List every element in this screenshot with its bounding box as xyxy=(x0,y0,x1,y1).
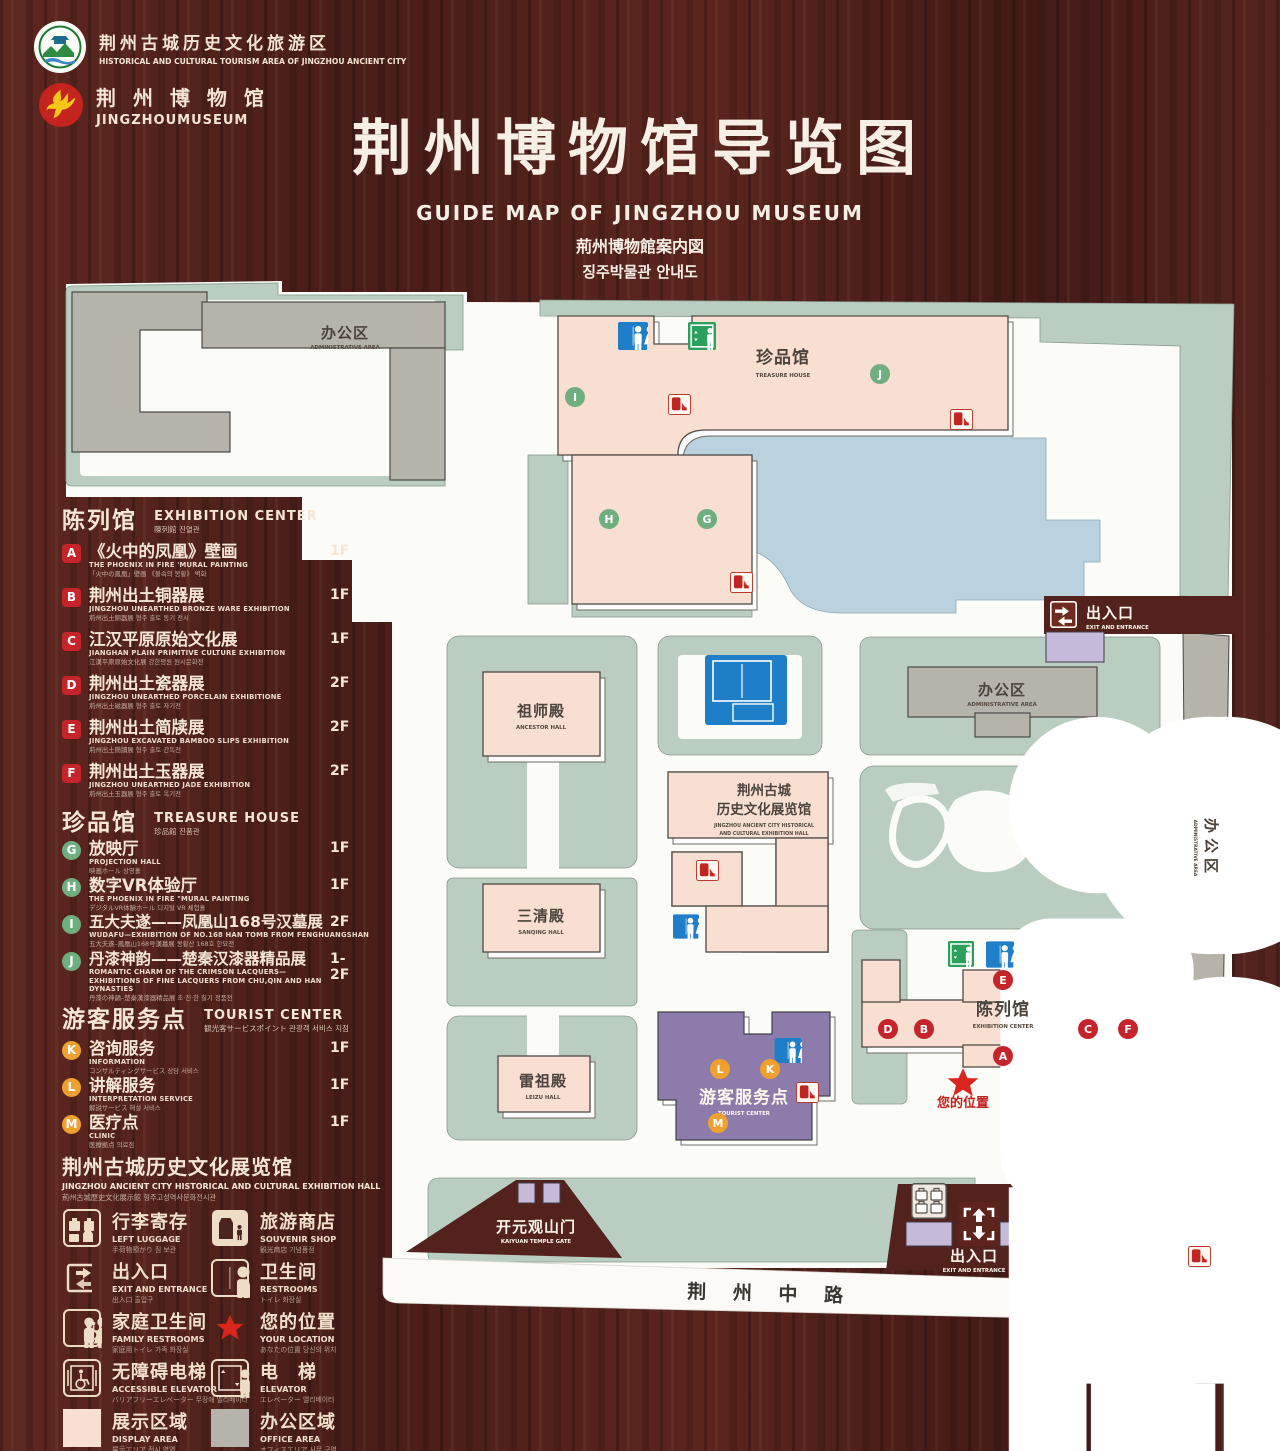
svg-text:H: H xyxy=(604,513,613,526)
section-title: 游客服务点 xyxy=(62,1000,187,1034)
floor-label: 1F xyxy=(330,840,349,856)
elevator-icon xyxy=(210,1358,250,1398)
svg-text:EXIT AND ENTRANCE: EXIT AND ENTRANCE xyxy=(943,1268,1006,1274)
marker-badge-K: K xyxy=(62,1041,81,1060)
legend-restrooms: 卫生间 RESTROOMSトイレ 화장실 xyxy=(210,1258,318,1304)
list-item-H: H 数字VR体验厅 THE PHOENIX IN FIRE "MURAL PAI… xyxy=(62,877,362,912)
floor-label: 1-2F xyxy=(330,951,362,983)
svg-text:TREASURE HOUSE: TREASURE HOUSE xyxy=(756,373,811,379)
guide-map-poster: 荆 州 中 路 xyxy=(0,0,1280,1451)
kaiyuan-gate-label: 开元观山门 xyxy=(496,1218,576,1236)
marker-badge-M: M xyxy=(62,1115,81,1134)
svg-text:ANCESTOR HALL: ANCESTOR HALL xyxy=(516,725,567,731)
page-title-ja: 荊州博物館案内図 xyxy=(0,233,1280,257)
list-item-C: C 江汉平原原始文化展 JIANGHAN PLAIN PRIMITIVE CUL… xyxy=(62,631,362,666)
family-restrooms-icon xyxy=(62,1308,102,1348)
svg-text:G: G xyxy=(702,513,711,526)
accessible-elevator-icon xyxy=(62,1358,102,1398)
floor-label: 2F xyxy=(330,763,349,779)
svg-text:历史文化展览馆: 历史文化展览馆 xyxy=(717,801,812,818)
svg-text:B: B xyxy=(920,1023,928,1036)
marker-B: B xyxy=(914,1019,934,1039)
list-item-A: A 《火中的凤凰》壁画 THE PHOENIX IN FIRE 'MURAL P… xyxy=(62,543,362,578)
legend-display-area: 展示区域 DISPLAY AREA展示エリア 전시 영역 xyxy=(62,1408,188,1451)
svg-text:K: K xyxy=(766,1063,775,1076)
svg-text:F: F xyxy=(1124,1023,1132,1036)
exit-s-label: 出入口 xyxy=(950,1247,998,1265)
jz-hall-note: 荆州古城历史文化展览馆 JINGZHOU ANCIENT CITY HISTOR… xyxy=(62,1151,380,1203)
legend-family-restrooms: 家庭卫生间 FAMILY RESTROOMS家庭用トイレ 가족 화장실 xyxy=(62,1308,207,1354)
marker-I: I xyxy=(565,387,585,407)
list-item-G: G 放映厅 PROJECTION HALL 映画ホール 상영홀 1F xyxy=(62,840,362,875)
your-location-label: 您的位置 xyxy=(937,1095,989,1111)
fire-extinguisher-icon xyxy=(797,1082,819,1102)
svg-text:JINGZHOU ANCIENT CITY HISTORIC: JINGZHOU ANCIENT CITY HISTORICAL xyxy=(713,823,814,829)
exit-ne-label: 出入口 xyxy=(1086,604,1134,622)
left-luggage-icon xyxy=(62,1208,102,1248)
svg-text:M: M xyxy=(713,1117,724,1130)
legend-elevator: 电 梯 ELEVATORエレベーター 엘리베이터 xyxy=(210,1358,334,1404)
section-title: 陈列馆 xyxy=(62,501,137,535)
page-title-ko: 징주박물관 안내도 xyxy=(0,261,1280,282)
legend-your-location: 您的位置 YOUR LOCATIONあなたの位置 당신의 위치 xyxy=(210,1308,336,1354)
marker-badge-D: D xyxy=(62,676,81,695)
restrooms-icon xyxy=(210,1258,250,1298)
marker-L: L xyxy=(710,1059,730,1079)
legend-souvenir-shop: 旅游商店 SOUVENIR SHOP観光商店 기념품점 xyxy=(210,1208,336,1254)
svg-text:KAIYUAN TEMPLE GATE: KAIYUAN TEMPLE GATE xyxy=(501,1239,572,1245)
svg-text:D: D xyxy=(883,1023,892,1036)
legend-left-luggage: 行李寄存 LEFT LUGGAGE手荷物預かり 짐 보관 xyxy=(62,1208,188,1254)
road-label: 荆 州 中 路 xyxy=(687,1280,853,1307)
svg-text:办公区: 办公区 xyxy=(1202,818,1220,878)
marker-badge-A: A xyxy=(62,544,81,563)
svg-text:C: C xyxy=(1084,1023,1092,1036)
fire-extinguisher-icon xyxy=(951,409,973,429)
svg-text:LEIZU HALL: LEIZU HALL xyxy=(526,1095,561,1101)
display-area-swatch xyxy=(63,1409,101,1447)
floor-label: 1F xyxy=(330,1077,349,1093)
poster-title-block: 荆州博物馆导览图 GUIDE MAP OF JINGZHOU MUSEUM 荊州… xyxy=(0,100,1280,282)
floor-label: 1F xyxy=(330,1114,349,1130)
fire-extinguisher-icon xyxy=(669,394,691,414)
list-item-I: I 五大夫遂——凤凰山168号汉墓展 WUDAFU—EXHIBITION OF … xyxy=(62,914,362,948)
marker-F: F xyxy=(1118,1019,1138,1039)
marker-D: D xyxy=(878,1019,898,1039)
svg-text:SANQING HALL: SANQING HALL xyxy=(518,930,564,936)
ancestor-hall-label: 祖师殿 xyxy=(516,702,565,720)
fire-extinguisher-icon xyxy=(697,860,719,880)
tourism-area-logo: 荆州古城历史文化旅游区 HISTORICAL AND CULTURAL TOUR… xyxy=(33,20,406,74)
marker-badge-F: F xyxy=(62,764,81,783)
tourist-center-label: 游客服务点 xyxy=(699,1087,789,1108)
tourist-center-building xyxy=(658,1012,835,1145)
treasure-house-label: 珍品馆 xyxy=(756,347,810,368)
floor-label: 1F xyxy=(330,587,349,603)
list-item-F: F 荆州出土玉器展 JINGZHOU UNEARTHED JADE EXHIBI… xyxy=(62,763,362,798)
section-tourist-center: 游客服务点 TOURIST CENTER 観光客サービスポイント 관광객 서비스… xyxy=(62,1000,349,1034)
tourism-logo-emblem xyxy=(33,20,87,74)
section-exhibition-center: 陈列馆 EXHIBITION CENTER 陳列館 진열관 xyxy=(62,501,318,535)
svg-text:EXHIBITION CENTER: EXHIBITION CENTER xyxy=(973,1024,1035,1030)
list-item-E: E 荆州出土简牍展 JINGZHOU EXCAVATED BAMBOO SLIP… xyxy=(62,719,362,754)
marker-E: E xyxy=(993,970,1013,990)
list-item-M: M 医疗点 CLINIC 医療拠点 의료점 1F xyxy=(62,1114,362,1149)
section-title: 珍品馆 xyxy=(62,803,137,837)
tourism-logo-title: 荆州古城历史文化旅游区 xyxy=(99,29,406,54)
floor-label: 2F xyxy=(330,675,349,691)
northeast-exit-icon xyxy=(1050,601,1077,628)
admin-area-e-label: 办公区 xyxy=(978,681,1026,699)
elevator-icon xyxy=(948,941,974,969)
exhibition-center-label: 陈列馆 xyxy=(976,999,1030,1020)
svg-text:A: A xyxy=(999,1050,1008,1063)
svg-text:EXIT AND ENTRANCE: EXIT AND ENTRANCE xyxy=(1086,625,1149,631)
admin-area-nw-label: 办公区 xyxy=(321,324,369,342)
marker-badge-G: G xyxy=(62,841,81,860)
marker-G: G xyxy=(697,509,717,529)
floor-label: 1F xyxy=(330,877,349,893)
list-item-D: D 荆州出土瓷器展 JINGZHOU UNEARTHED PORCELAIN E… xyxy=(62,675,362,710)
marker-badge-E: E xyxy=(62,720,81,739)
exit-entrance-icon xyxy=(62,1258,102,1298)
floor-label: 2F xyxy=(330,719,349,735)
floor-label: 2F xyxy=(330,914,349,930)
svg-text:TOURIST CENTER: TOURIST CENTER xyxy=(718,1111,771,1117)
south-exit-icon xyxy=(958,1202,1000,1246)
office-area-swatch xyxy=(211,1409,249,1447)
fire-extinguisher-icon xyxy=(1189,1246,1211,1266)
legend-exit-entrance: 出入口 EXIT AND ENTRANCE出入口 출입구 xyxy=(62,1258,207,1304)
svg-text:ADMINISTRATIVE AREA: ADMINISTRATIVE AREA xyxy=(967,702,1037,708)
svg-text:J: J xyxy=(877,368,882,381)
admin-strip-label: 办公区 ADMINISTRATIVE AREA xyxy=(1192,818,1220,878)
left-luggage-icon xyxy=(912,1184,946,1218)
section-treasure-house: 珍品馆 TREASURE HOUSE 珍品館 진품관 xyxy=(62,803,300,837)
marker-J: J xyxy=(870,364,890,384)
marker-badge-J: J xyxy=(62,952,81,971)
your-location-icon xyxy=(210,1308,250,1348)
marker-C: C xyxy=(1078,1019,1098,1039)
marker-A: A xyxy=(993,1046,1013,1066)
marker-badge-L: L xyxy=(62,1078,81,1097)
marker-badge-I: I xyxy=(62,915,81,934)
list-item-J: J 丹漆神韵——楚秦汉漆器精品展 ROMANTIC CHARM OF THE C… xyxy=(62,951,362,1002)
list-item-L: L 讲解服务 INTERPRETATION SERVICE 解説サービス 해설 … xyxy=(62,1077,362,1112)
svg-text:荆州古城: 荆州古城 xyxy=(737,782,791,799)
marker-badge-H: H xyxy=(62,878,81,897)
svg-text:AND CULTURAL EXHIBITION HALL: AND CULTURAL EXHIBITION HALL xyxy=(719,831,808,837)
legend-office-area: 办公区域 OFFICE AREAオフィスエリア 사무 구역 xyxy=(210,1408,337,1451)
fire-extinguisher-icon xyxy=(731,572,753,592)
floor-label: 1F xyxy=(330,631,349,647)
marker-badge-B: B xyxy=(62,588,81,607)
marker-K: K xyxy=(760,1059,780,1079)
marker-badge-C: C xyxy=(62,632,81,651)
svg-text:ADMINISTRATIVE AREA: ADMINISTRATIVE AREA xyxy=(1192,820,1198,877)
svg-text:ADMINISTRATIVE AREA: ADMINISTRATIVE AREA xyxy=(310,345,380,351)
marker-M: M xyxy=(708,1113,728,1133)
svg-text:L: L xyxy=(716,1063,723,1076)
svg-text:E: E xyxy=(999,974,1007,987)
sanqing-hall-label: 三清殿 xyxy=(517,907,565,925)
tourism-logo-subtitle: HISTORICAL AND CULTURAL TOURISM AREA OF … xyxy=(99,57,406,66)
page-title: 荆州博物馆导览图 xyxy=(0,100,1280,187)
svg-text:I: I xyxy=(573,391,577,404)
list-item-B: B 荆州出土铜器展 JINGZHOU UNEARTHED BRONZE WARE… xyxy=(62,587,362,622)
floor-label: 1F xyxy=(330,1040,349,1056)
elevator-icon xyxy=(688,322,716,352)
page-title-en: GUIDE MAP OF JINGZHOU MUSEUM xyxy=(0,201,1280,225)
leizu-hall-label: 雷祖殿 xyxy=(519,1072,567,1090)
list-item-K: K 咨询服务 INFORMATION コンサルティングサービス 상담 서비스 1… xyxy=(62,1040,362,1075)
marker-H: H xyxy=(599,509,619,529)
floor-label: 1F xyxy=(330,543,349,559)
souvenir-shop-icon xyxy=(210,1208,250,1248)
